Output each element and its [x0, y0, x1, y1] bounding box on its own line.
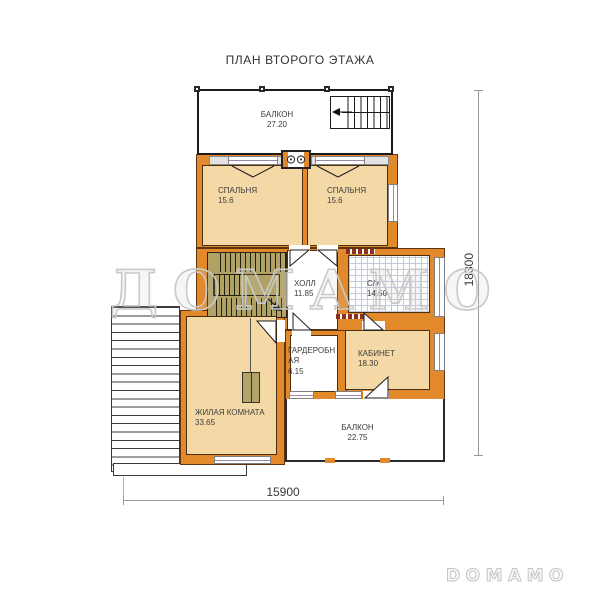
railing-post [194, 86, 200, 92]
balcony-stairs [330, 96, 390, 129]
label-office: КАБИНЕТ 18.30 [358, 349, 395, 370]
label-bedroom-left: СПАЛЬНЯ 15.6 [218, 186, 257, 207]
label-living: ЖИЛАЯ КОМНАТА 33.65 [195, 408, 265, 429]
window-bedroom-left [228, 156, 278, 165]
window-office-side [434, 333, 445, 371]
dim-bottom-value: 15900 [123, 485, 443, 499]
door-gap-balcony [363, 391, 389, 399]
brand-logo: DOMAMO [446, 566, 569, 586]
chimney-cap [304, 152, 309, 167]
door-gap-bedroom-right [317, 245, 338, 252]
interior-staircase [207, 252, 287, 318]
label-hall: ХОЛЛ 11.85 [294, 279, 316, 300]
dim-tick [474, 455, 483, 456]
roof-hatch [111, 306, 180, 472]
partition-line [250, 318, 251, 372]
vent-grille [336, 314, 365, 319]
label-balcony-top: БАЛКОН 27.20 [237, 110, 317, 131]
window-bedroom-right-side [388, 184, 398, 222]
stair-landing [213, 274, 280, 296]
label-wardrobe: ГАРДЕРОБНАЯ 6.15 [288, 346, 338, 377]
label-bathroom: С/У 14.50 [367, 279, 387, 300]
railing-post [324, 86, 330, 92]
window-wardrobe-south [289, 391, 314, 399]
door-gap-wardrobe [292, 329, 311, 336]
stair-treads [214, 275, 241, 295]
closet [242, 372, 260, 403]
window-bedroom-right [315, 156, 365, 165]
stair-treads [342, 97, 389, 128]
balcony-post [325, 458, 335, 463]
label-bedroom-right: СПАЛЬНЯ 15.6 [327, 186, 366, 207]
chimney-block [281, 150, 311, 169]
chimney-cap [283, 152, 288, 167]
door-gap-office [362, 321, 385, 330]
stair-treads [220, 253, 286, 272]
dim-tick [443, 496, 444, 505]
window-living-south [214, 456, 271, 464]
room-living [186, 316, 277, 455]
door-gap-bedroom-left [289, 245, 310, 252]
stair-treads [216, 298, 286, 317]
window-office-south [335, 391, 362, 399]
page-title: ПЛАН ВТОРОГО ЭТАЖА [0, 53, 600, 67]
window-bathroom [434, 257, 445, 317]
vent-grille [346, 249, 375, 254]
floor-plan-canvas: ПЛАН ВТОРОГО ЭТАЖА [0, 0, 600, 600]
dim-line-bottom [123, 500, 443, 501]
dim-tick [474, 90, 483, 91]
dim-line-right [478, 90, 479, 455]
door-gap-living [277, 320, 285, 342]
dim-right-value: 18300 [462, 253, 476, 286]
railing-post [388, 86, 394, 92]
railing-post [259, 86, 265, 92]
label-balcony-bottom: БАЛКОН 22.75 [325, 423, 390, 444]
balcony-post [380, 458, 390, 463]
room-bathroom [348, 255, 430, 313]
